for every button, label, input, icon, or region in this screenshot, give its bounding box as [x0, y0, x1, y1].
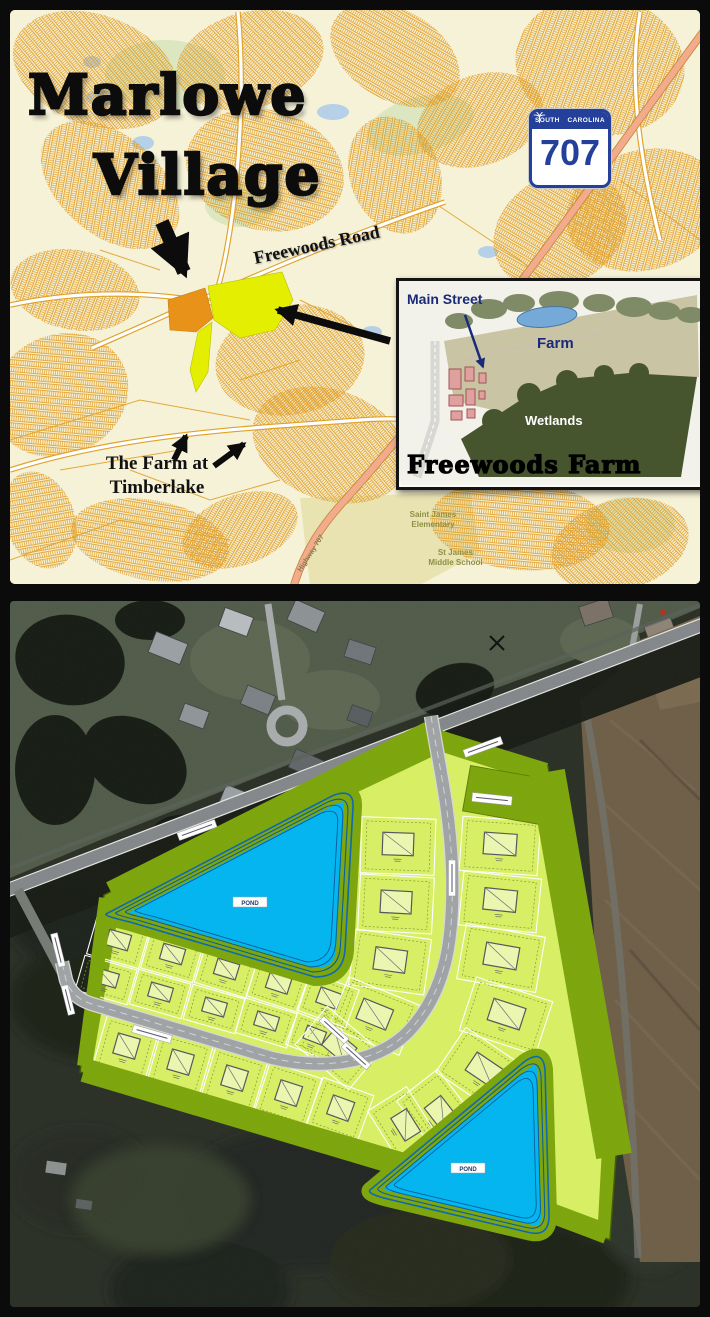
location-map-panel: Marlowe Village Freewoods Road The Farm …: [10, 10, 700, 584]
title-line-2: Village: [94, 142, 321, 207]
title-line-1: Marlowe: [28, 62, 307, 127]
wetlands-label: Wetlands: [525, 413, 583, 428]
inset-caption: Freewoods Farm: [407, 450, 641, 479]
farm-at-timberlake-label: The Farm at Timberlake: [82, 452, 232, 500]
freewoods-farm-inset: Main Street Farm Wetlands Freewoods Farm: [396, 278, 700, 490]
elementary-line-1: Saint James: [410, 510, 457, 519]
timberlake-line-2: Timberlake: [110, 477, 205, 498]
middle-line-2: Middle School: [428, 558, 482, 567]
main-street-label: Main Street: [407, 291, 482, 307]
elementary-line-2: Elementary: [411, 520, 454, 529]
timberlake-line-1: The Farm at: [106, 453, 208, 474]
shield-state-right: CAROLINA: [567, 117, 605, 124]
flyer-frame: Marlowe Village Freewoods Road The Farm …: [0, 0, 710, 1317]
shield-state-band: SOUTH CAROLINA: [532, 112, 608, 129]
middle-school-label: St James Middle School: [408, 548, 503, 567]
photo-grain: [10, 601, 700, 1307]
route-707-shield: SOUTH CAROLINA 707: [529, 109, 611, 188]
shield-route-number: 707: [532, 129, 608, 178]
farm-label: Farm: [537, 335, 574, 352]
elementary-school-label: Saint James Elementary: [388, 510, 478, 529]
palmetto-icon: [532, 112, 547, 125]
site-plan-aerial-panel: POND POND: [10, 601, 700, 1307]
aerial-art: POND POND: [10, 601, 700, 1307]
middle-line-1: St James: [438, 548, 473, 557]
